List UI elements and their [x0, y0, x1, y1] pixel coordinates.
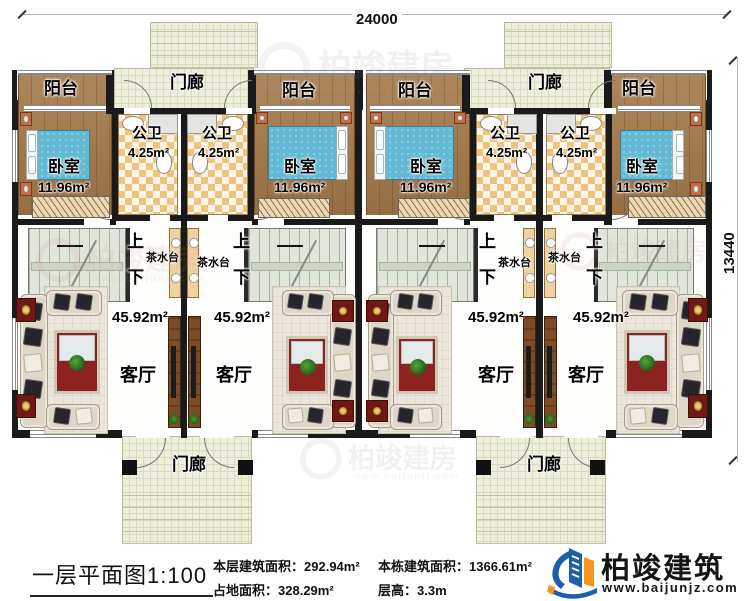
pillow — [338, 154, 346, 174]
dimension-depth-label: 13440 — [722, 228, 737, 278]
stairs-down-label: 下 — [233, 269, 250, 286]
living-area: 45.92m² — [112, 310, 168, 325]
porch-label: 门廊 — [527, 456, 561, 473]
stat-value: 328.29m² — [278, 583, 334, 598]
sofa-cushion — [287, 293, 304, 310]
sofa-cushion — [75, 407, 93, 425]
sofa-cushion — [333, 327, 352, 346]
balcony-door-unit4 — [618, 105, 700, 112]
bathroom-area: 4.25m² — [486, 146, 527, 159]
stat-label: 占地面积： — [213, 583, 278, 598]
stairs-up-label: 上 — [127, 233, 144, 250]
stat-value: 292.94m² — [304, 559, 360, 574]
bedroom-label: 卧室 — [626, 160, 658, 176]
pillow — [376, 130, 384, 150]
coffee-table-unit1 — [54, 330, 100, 394]
tea-station-label: 茶水台 — [498, 258, 531, 269]
balcony-rail-unit4 — [611, 70, 706, 75]
bedroom-bath-wall — [470, 108, 476, 221]
brand-website: www.baijunjz.com — [602, 580, 738, 595]
balcony-rail-unit1 — [18, 70, 112, 75]
balcony-label: 阳台 — [622, 80, 656, 97]
balcony-wall-stub — [462, 70, 470, 110]
stat-label: 本层建筑面积： — [213, 559, 304, 574]
sofa-cushion — [53, 293, 71, 311]
stair-landing — [379, 262, 471, 271]
party-wall-1-2 — [181, 108, 187, 438]
closet-unit3 — [398, 198, 470, 218]
living-room-label: 客厅 — [478, 366, 514, 384]
sofa-cushion — [371, 353, 390, 372]
door-gap — [590, 108, 616, 114]
bath-door-gap — [150, 215, 170, 221]
plan-title: 一层平面图1:100 — [30, 558, 213, 597]
nightstand — [20, 182, 32, 196]
stat-floor-area: 本层建筑面积：292.94m² — [213, 556, 360, 575]
balcony-rail-unit3 — [366, 70, 470, 75]
bottom-porch-steplines-left — [122, 488, 252, 544]
plant — [69, 355, 85, 371]
sofa-cushion — [23, 327, 43, 347]
porch-pillar — [238, 460, 253, 475]
window-left-bedroom — [12, 130, 18, 182]
stair-direction-mark — [277, 245, 303, 247]
watermark-ring-icon — [300, 438, 342, 480]
dimension-tick — [722, 10, 731, 19]
stair-side-wall — [474, 228, 478, 302]
coffee-table-unit2 — [286, 336, 328, 394]
door-gap — [124, 108, 150, 114]
balcony-wall-stub — [12, 70, 17, 110]
bathroom-label: 公卫 — [202, 126, 232, 141]
stairs-up-label: 上 — [586, 233, 603, 250]
porch-pillar — [590, 460, 605, 475]
balcony-door-unit3 — [370, 105, 460, 112]
plant — [189, 414, 199, 424]
closet-unit1 — [32, 196, 110, 218]
pillow — [676, 134, 684, 152]
tv-screen — [526, 346, 531, 398]
bedroom-door-gap — [612, 219, 638, 225]
top-porch-steplines-left — [150, 22, 258, 68]
bedroom-door-gap — [84, 219, 110, 225]
bathroom-bottom-wall-right — [470, 215, 612, 221]
bath-door-gap — [494, 215, 514, 221]
balcony-rail-unit2 — [254, 70, 355, 75]
sofa-cushion — [371, 327, 390, 346]
sofa-cushion — [23, 353, 43, 373]
sofa-cushion — [397, 407, 414, 424]
bath-door-gap — [208, 215, 228, 221]
nightstand — [370, 112, 382, 124]
tea-station-label: 茶水台 — [146, 253, 179, 264]
stair-direction-mark — [57, 245, 83, 247]
nightstand — [454, 112, 466, 124]
entry-door-gap — [136, 430, 170, 438]
stat-value: 3.3m — [417, 583, 447, 598]
nightstand — [690, 112, 702, 126]
sofa-cushion — [417, 293, 434, 310]
closet-unit4 — [628, 196, 706, 218]
sofa-cushion — [417, 407, 433, 423]
watermark-site: www.baijunjf.com — [353, 470, 460, 481]
side-table — [688, 394, 708, 418]
stat-storey-height: 层高：3.3m — [378, 580, 447, 599]
bathroom-area: 4.25m² — [198, 146, 239, 159]
living-room-label: 客厅 — [568, 366, 604, 384]
pillow — [338, 130, 346, 150]
stair-landing — [31, 262, 123, 271]
sofa-cushion — [651, 293, 669, 311]
bathroom-label: 公卫 — [560, 126, 590, 141]
side-table — [366, 400, 388, 422]
sofa-cushion — [333, 379, 352, 398]
living-area: 45.92m² — [573, 310, 629, 325]
pillow — [28, 134, 36, 152]
bathroom-bottom-wall-left — [112, 215, 254, 221]
stat-label: 本栋建筑面积： — [378, 559, 469, 574]
bedroom-area: 11.96m² — [274, 180, 325, 194]
tea-station-label: 茶水台 — [197, 258, 230, 269]
party-wall-3-4 — [536, 108, 543, 438]
plant — [639, 355, 655, 371]
balcony-door-unit1 — [24, 105, 106, 112]
balcony-wall-stub — [707, 70, 712, 110]
sofa-cushion — [397, 293, 414, 310]
stairs-down-label: 下 — [479, 269, 496, 286]
top-porch-steplines-right — [504, 22, 612, 68]
stat-label: 层高： — [378, 583, 417, 598]
side-table — [332, 400, 354, 422]
stairs-down-label: 下 — [586, 269, 603, 286]
bedroom-label: 卧室 — [284, 160, 316, 176]
bedroom-bath-wall — [248, 108, 254, 221]
nightstand — [20, 112, 32, 126]
window-right-bedroom — [706, 130, 712, 182]
bath-door-gap — [552, 215, 572, 221]
balcony-wall-stub — [106, 70, 114, 110]
sofa-cushion — [287, 407, 303, 423]
entry-door-gap — [500, 430, 534, 438]
tea-station-label: 茶水台 — [548, 253, 581, 264]
dimension-width-label: 24000 — [352, 12, 402, 27]
sofa-cushion — [629, 293, 647, 311]
party-wall-2-3 — [355, 108, 362, 438]
stairs-up-label: 上 — [233, 233, 250, 250]
bathroom-label: 公卫 — [490, 126, 520, 141]
window-left-living — [12, 318, 18, 390]
side-table — [366, 300, 388, 322]
bathroom-area: 4.25m² — [128, 146, 169, 159]
bedroom-area: 11.96m² — [38, 180, 89, 194]
bottom-porch-steplines-right — [476, 488, 606, 544]
tv-screen — [171, 346, 176, 398]
balcony-label: 阳台 — [398, 82, 432, 99]
door-gap — [226, 108, 252, 114]
sofa-cushion — [53, 407, 71, 425]
floor-plan-sheet: 24000 13440 — [0, 0, 750, 601]
balcony-wall-stub — [355, 70, 363, 110]
sofa-cushion — [75, 293, 93, 311]
sofa-cushion — [681, 353, 701, 373]
side-table — [16, 394, 36, 418]
pillow — [376, 154, 384, 174]
side-table — [16, 298, 36, 322]
living-room-label: 客厅 — [120, 366, 156, 384]
bedroom-label: 卧室 — [410, 160, 442, 176]
coffee-table-unit4 — [624, 330, 670, 394]
sofa-cushion — [629, 407, 647, 425]
balcony-label: 阳台 — [44, 80, 78, 97]
porch-label: 门廊 — [170, 74, 204, 91]
tv-screen — [547, 346, 552, 398]
pillow — [676, 156, 684, 174]
plant — [300, 359, 316, 375]
porch-label: 门廊 — [528, 74, 562, 91]
porch-label: 门廊 — [172, 456, 206, 473]
sofa-cushion — [651, 407, 669, 425]
side-table — [332, 300, 354, 322]
tv-screen — [191, 346, 196, 398]
bathroom-label: 公卫 — [132, 126, 162, 141]
closet-unit2 — [258, 198, 330, 218]
stairs-up-label: 上 — [479, 233, 496, 250]
living-room-label: 客厅 — [216, 366, 252, 384]
pillow — [28, 156, 36, 174]
bedroom-door-gap — [438, 219, 464, 225]
stair-direction-mark — [639, 245, 665, 247]
plant — [545, 414, 555, 424]
porch-pillar — [476, 460, 491, 475]
bedroom-area: 11.96m² — [616, 180, 667, 194]
stair-direction-mark — [419, 245, 445, 247]
living-area: 45.92m² — [468, 310, 524, 325]
sofa-cushion — [307, 407, 324, 424]
stat-building-area: 本栋建筑面积：1366.61m² — [378, 556, 532, 575]
nightstand — [340, 112, 352, 124]
watermark-text: 柏竣建房 — [348, 445, 457, 472]
plant — [169, 414, 179, 424]
stairs-down-label: 下 — [127, 269, 144, 286]
stair-landing — [599, 262, 691, 271]
sofa-cushion — [371, 379, 390, 398]
sofa-cushion — [307, 293, 324, 310]
window-right-living — [706, 318, 712, 390]
watermark: 柏竣建房 www.baijunjf.com — [300, 438, 457, 480]
nightstand — [256, 112, 268, 124]
plant — [524, 414, 534, 424]
stair-landing — [251, 262, 343, 271]
bedroom-label: 卧室 — [48, 160, 80, 176]
bathroom-area: 4.25m² — [556, 146, 597, 159]
stat-land-area: 占地面积：328.29m² — [213, 580, 334, 599]
living-area: 45.92m² — [214, 310, 270, 325]
porch-pillar — [122, 460, 137, 475]
sofa-cushion — [681, 327, 701, 347]
bedroom-area: 11.96m² — [400, 180, 451, 194]
side-table — [688, 298, 708, 322]
sofa-cushion — [333, 353, 352, 372]
balcony-label: 阳台 — [282, 82, 316, 99]
coffee-table-unit3 — [396, 336, 438, 394]
bedroom-door-gap — [258, 219, 284, 225]
balcony-door-unit2 — [260, 105, 350, 112]
entry-door-gap — [564, 430, 598, 438]
nightstand — [690, 182, 702, 196]
plant — [410, 359, 426, 375]
stat-value: 1366.61m² — [469, 559, 532, 574]
bedroom-bath-wall — [112, 108, 118, 221]
entry-door-gap — [200, 430, 234, 438]
brand-logo-icon — [545, 543, 601, 599]
